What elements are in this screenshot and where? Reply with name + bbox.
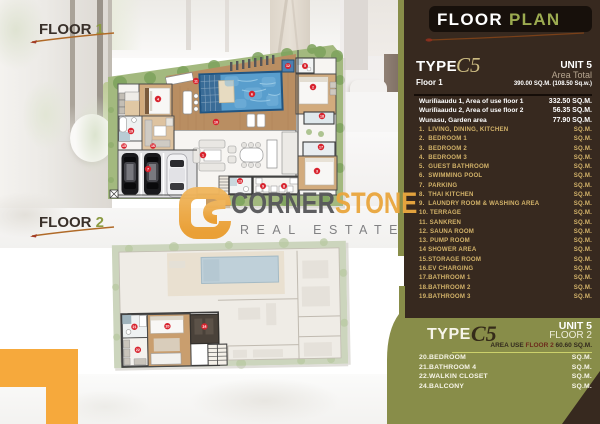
svg-text:11: 11 [194,79,198,83]
svg-text:13: 13 [238,179,242,183]
svg-text:24: 24 [202,325,206,329]
svg-text:20: 20 [165,324,169,328]
svg-text:4: 4 [157,97,159,101]
svg-text:10: 10 [214,120,218,124]
svg-text:3: 3 [316,169,318,173]
svg-text:18: 18 [320,114,324,118]
svg-text:15: 15 [122,144,126,148]
svg-text:22: 22 [136,348,140,352]
svg-text:6: 6 [251,92,253,96]
svg-text:1: 1 [202,153,204,157]
svg-text:21: 21 [132,325,136,329]
svg-text:2: 2 [312,85,314,89]
svg-text:12: 12 [286,64,290,68]
svg-text:17: 17 [319,145,323,149]
svg-text:19: 19 [129,129,133,133]
svg-text:16: 16 [151,144,155,148]
svg-text:7: 7 [147,167,149,171]
svg-text:5: 5 [304,64,306,68]
